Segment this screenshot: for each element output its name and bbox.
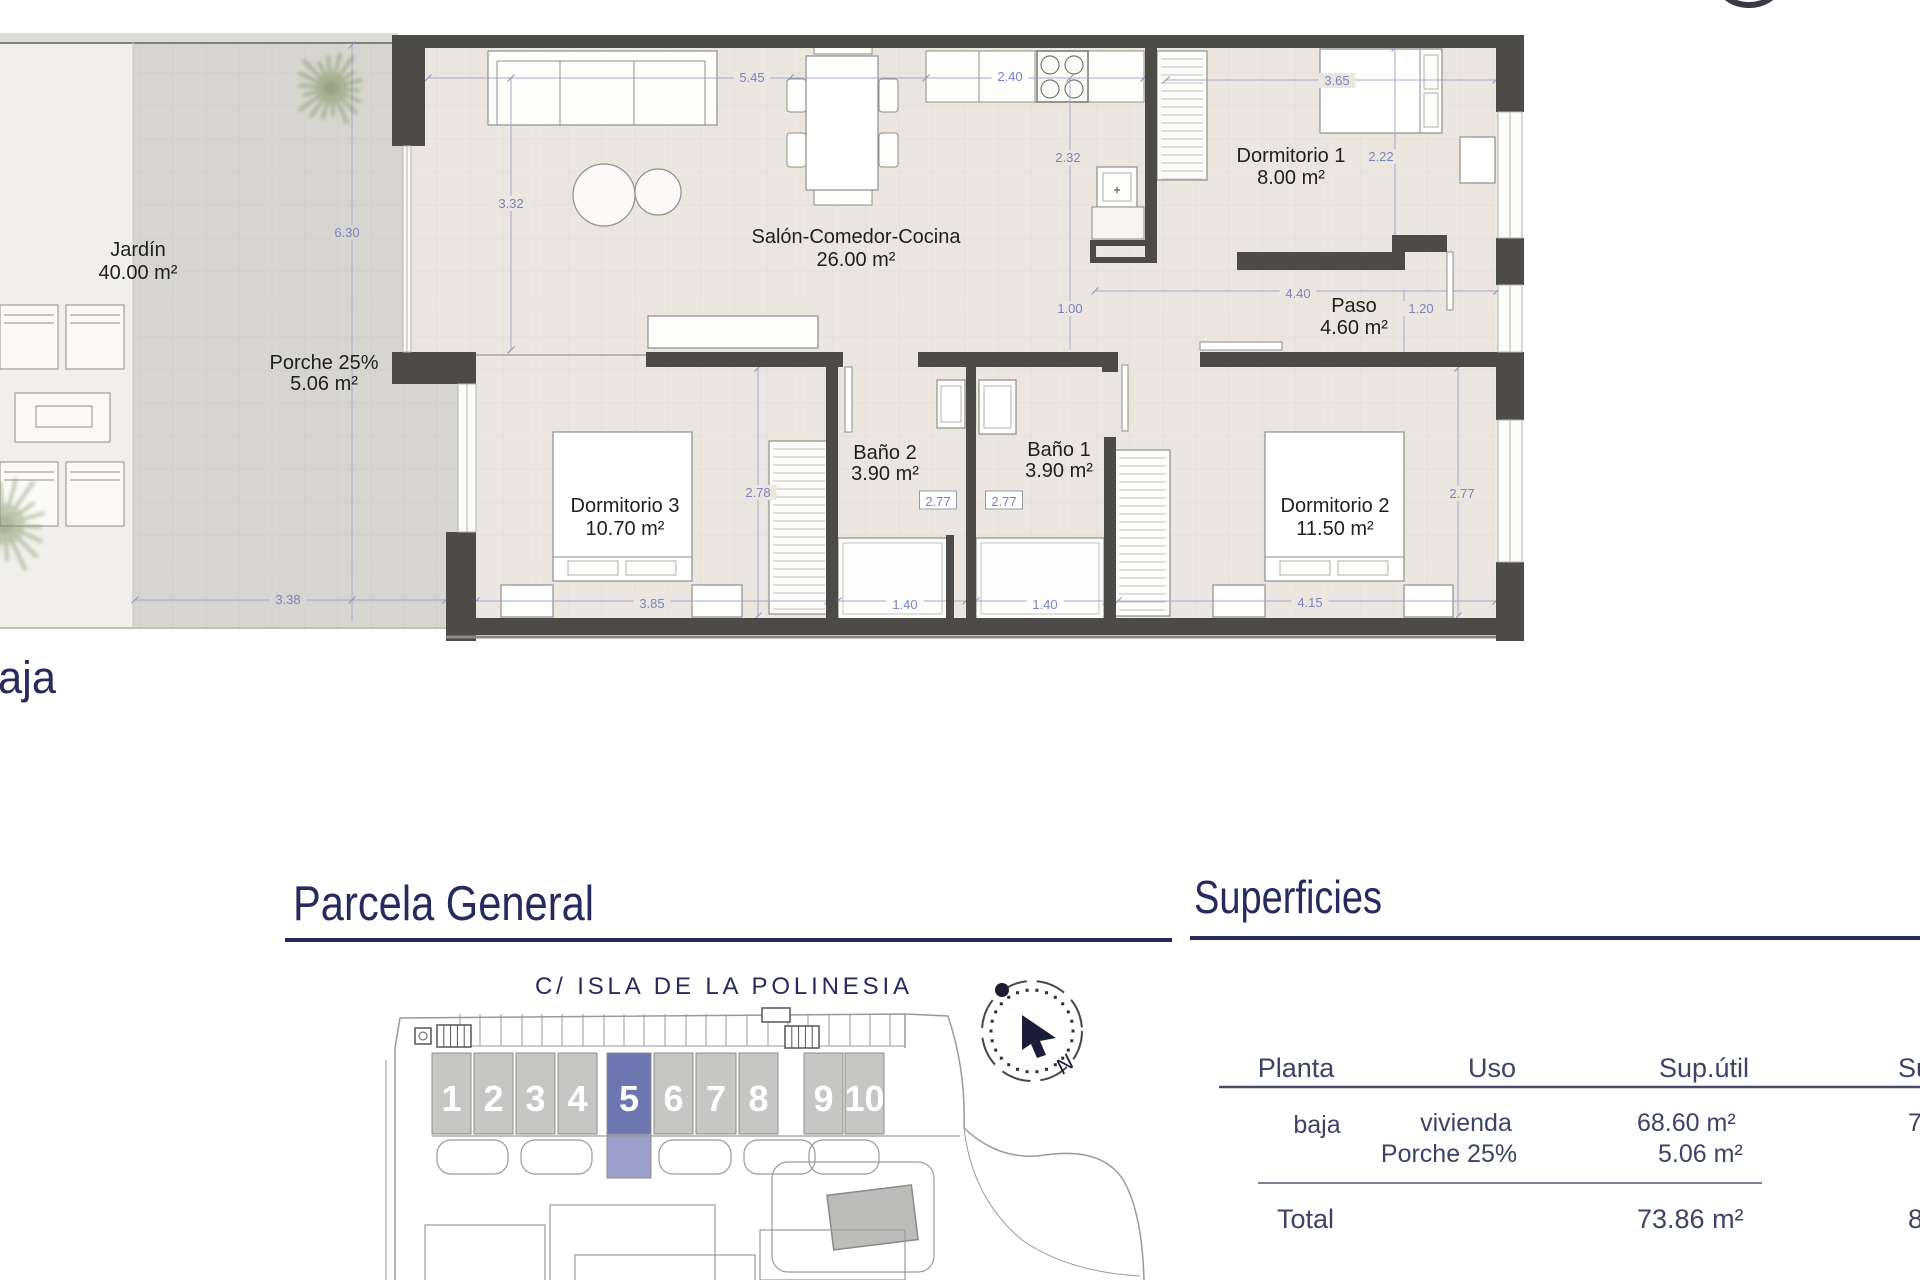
svg-text:8.00 m²: 8.00 m² [1257, 167, 1325, 189]
svg-text:Baño 2: Baño 2 [853, 442, 916, 464]
svg-text:6: 6 [663, 1078, 683, 1119]
svg-text:1.00: 1.00 [1057, 301, 1082, 316]
svg-text:Dormitorio 1: Dormitorio 1 [1237, 145, 1346, 167]
svg-text:2.40: 2.40 [997, 69, 1022, 84]
svg-text:Porche 25%: Porche 25% [270, 352, 379, 374]
svg-text:5: 5 [619, 1078, 639, 1119]
svg-text:3.90 m²: 3.90 m² [851, 463, 919, 485]
svg-text:1.40: 1.40 [1032, 597, 1057, 612]
svg-text:7: 7 [1908, 1109, 1920, 1137]
svg-text:Total: Total [1277, 1204, 1334, 1234]
svg-text:1: 1 [441, 1078, 461, 1119]
svg-text:73.86 m²: 73.86 m² [1637, 1204, 1744, 1234]
svg-text:Jardín: Jardín [110, 239, 166, 261]
svg-text:2: 2 [483, 1078, 503, 1119]
svg-text:aja: aja [0, 652, 57, 703]
svg-text:3.85: 3.85 [639, 596, 664, 611]
svg-text:3: 3 [525, 1078, 545, 1119]
svg-text:Parcela General: Parcela General [293, 877, 594, 931]
svg-text:1.40: 1.40 [892, 597, 917, 612]
svg-text:3.90 m²: 3.90 m² [1025, 460, 1093, 482]
svg-text:baja: baja [1293, 1111, 1340, 1139]
svg-text:68.60 m²: 68.60 m² [1637, 1109, 1736, 1137]
svg-text:4: 4 [567, 1078, 587, 1119]
svg-text:Porche 25%: Porche 25% [1381, 1140, 1517, 1168]
svg-text:5.06 m²: 5.06 m² [290, 373, 358, 395]
svg-text:2.22: 2.22 [1368, 149, 1393, 164]
svg-text:Salón-Comedor-Cocina: Salón-Comedor-Cocina [752, 226, 962, 248]
svg-text:Sup: Sup [1898, 1053, 1920, 1083]
svg-text:6.30: 6.30 [334, 225, 359, 240]
svg-text:Sup.útil: Sup.útil [1659, 1053, 1749, 1083]
svg-text:3.38: 3.38 [275, 592, 300, 607]
svg-text:3.32: 3.32 [498, 196, 523, 211]
svg-text:4.15: 4.15 [1297, 595, 1322, 610]
svg-text:4.60 m²: 4.60 m² [1320, 317, 1388, 339]
svg-text:5.06 m²: 5.06 m² [1658, 1140, 1743, 1168]
svg-text:3.65: 3.65 [1324, 73, 1349, 88]
svg-text:8: 8 [748, 1078, 768, 1119]
svg-text:7: 7 [706, 1078, 726, 1119]
svg-text:Baño 1: Baño 1 [1027, 439, 1090, 461]
svg-text:Uso: Uso [1468, 1053, 1516, 1083]
svg-text:40.00 m²: 40.00 m² [99, 262, 178, 284]
svg-text:10: 10 [844, 1078, 884, 1119]
svg-text:2.77: 2.77 [1449, 486, 1474, 501]
svg-text:vivienda: vivienda [1420, 1109, 1512, 1137]
svg-text:2.32: 2.32 [1055, 150, 1080, 165]
svg-text:2.77: 2.77 [991, 494, 1016, 509]
svg-text:10.70 m²: 10.70 m² [586, 518, 665, 540]
svg-text:Dormitorio 2: Dormitorio 2 [1281, 495, 1390, 517]
svg-text:26.00 m²: 26.00 m² [817, 249, 896, 271]
svg-text:8: 8 [1908, 1204, 1920, 1234]
svg-text:5.45: 5.45 [739, 70, 764, 85]
svg-text:4.40: 4.40 [1285, 286, 1310, 301]
svg-text:Dormitorio 3: Dormitorio 3 [571, 495, 680, 517]
svg-text:11.50 m²: 11.50 m² [1296, 518, 1374, 540]
svg-text:Planta: Planta [1258, 1053, 1336, 1083]
svg-text:9: 9 [813, 1078, 833, 1119]
svg-text:1.20: 1.20 [1408, 301, 1433, 316]
svg-text:2.78: 2.78 [745, 485, 770, 500]
svg-text:Paso: Paso [1331, 295, 1377, 317]
svg-text:Superficies: Superficies [1194, 871, 1382, 923]
svg-text:C/ ISLA DE LA POLINESIA: C/ ISLA DE LA POLINESIA [535, 973, 909, 1000]
svg-text:2.77: 2.77 [925, 494, 950, 509]
